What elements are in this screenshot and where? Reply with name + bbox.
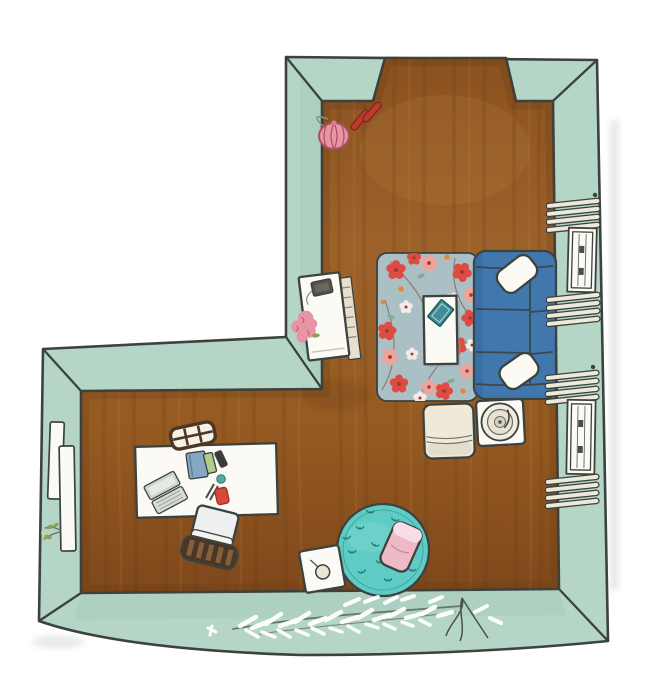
record-table: square side table with record player bbox=[476, 399, 525, 446]
pouf: round teal pouf with a pink cushion bbox=[337, 504, 429, 596]
floor-plan-illustration: Hand-drawn watercolor top-down floor pla… bbox=[0, 0, 650, 697]
window-frame bbox=[566, 400, 595, 474]
wall-shadow-right bbox=[610, 120, 619, 590]
side-table: small white side table with a cup bbox=[299, 545, 346, 593]
bench: cream bench with folded blanket bbox=[423, 403, 475, 459]
wall-shadow-bottom-left bbox=[32, 635, 84, 649]
window-frame bbox=[567, 228, 597, 293]
illustration-canvas: Hand-drawn watercolor top-down floor pla… bbox=[0, 0, 650, 697]
coffee-table: white coffee table with a teal book bbox=[423, 296, 460, 368]
wall-shade-bottom bbox=[74, 590, 566, 620]
sofa: blue three-seat sofa with two white pill… bbox=[474, 251, 556, 399]
